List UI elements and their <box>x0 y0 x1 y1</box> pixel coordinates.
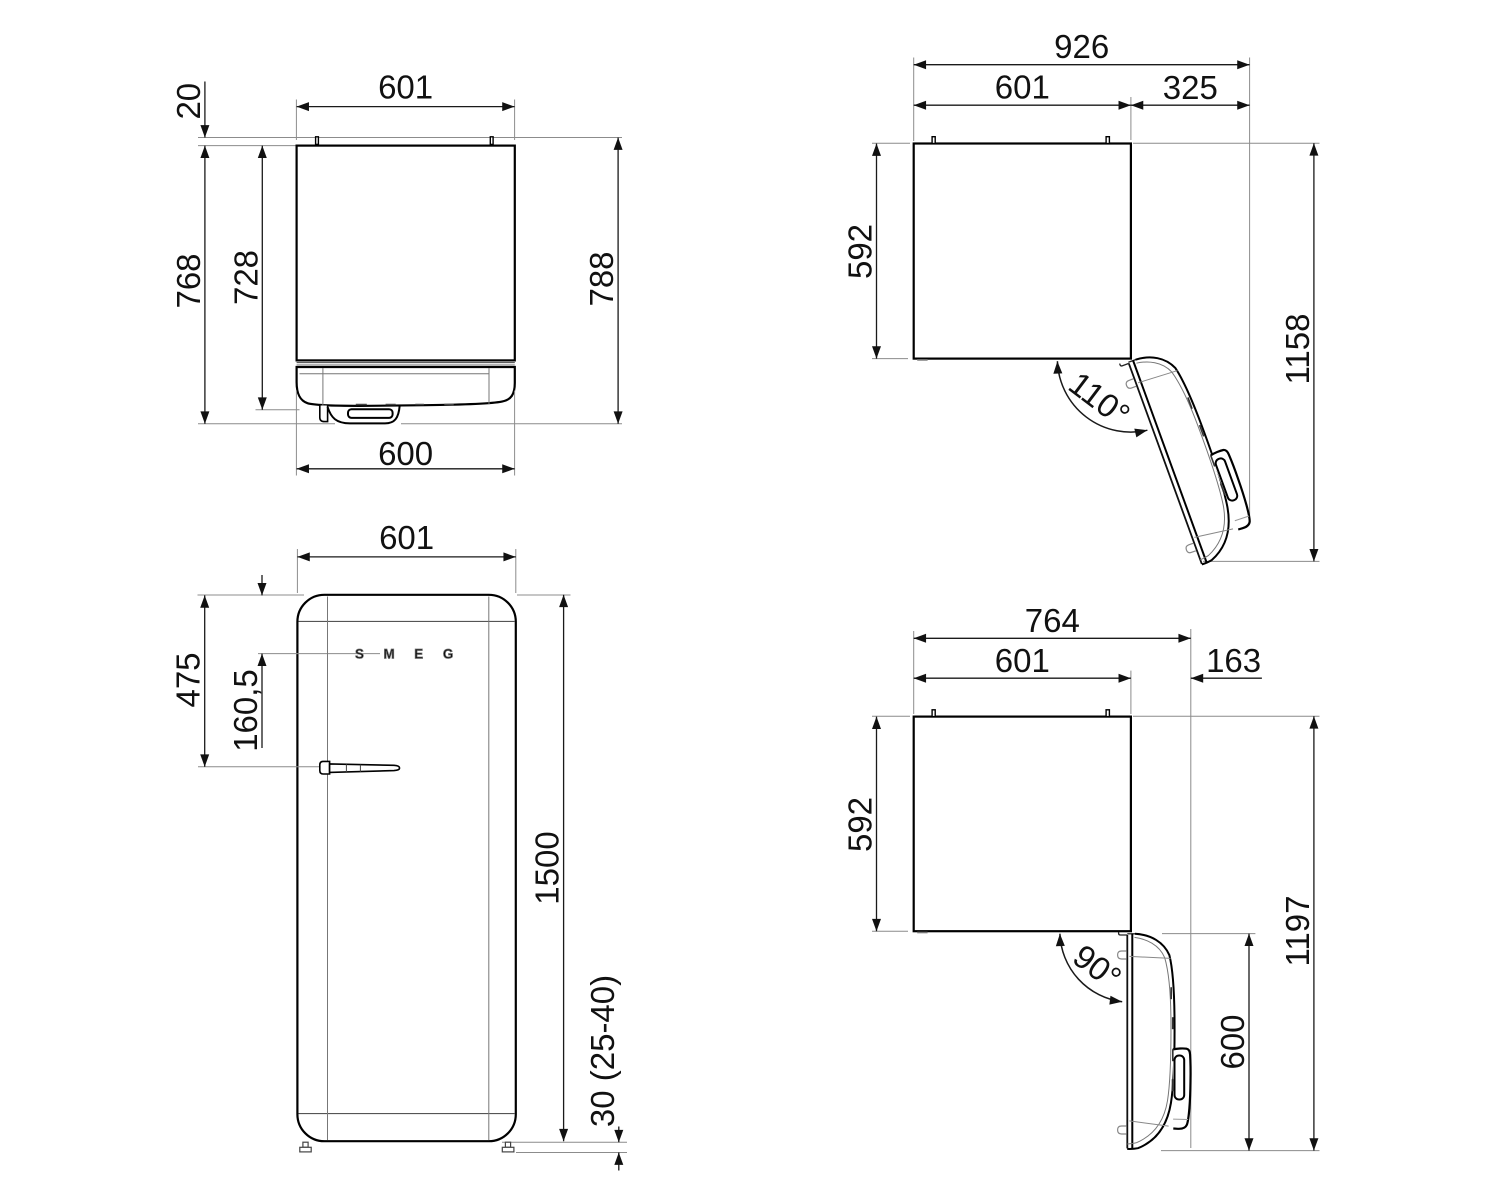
svg-text:728: 728 <box>227 250 264 305</box>
svg-text:601: 601 <box>378 69 433 106</box>
svg-text:926: 926 <box>1054 28 1109 65</box>
svg-text:768: 768 <box>170 253 207 308</box>
svg-text:600: 600 <box>378 435 433 472</box>
svg-text:1500: 1500 <box>529 831 566 904</box>
svg-text:475: 475 <box>170 652 207 707</box>
svg-text:1197: 1197 <box>1279 896 1316 967</box>
svg-text:601: 601 <box>379 519 434 556</box>
svg-text:30 (25-40): 30 (25-40) <box>584 975 621 1127</box>
svg-text:325: 325 <box>1163 69 1218 106</box>
svg-text:601: 601 <box>995 68 1050 105</box>
svg-text:600: 600 <box>1214 1014 1251 1069</box>
svg-text:592: 592 <box>842 224 879 279</box>
svg-text:1158: 1158 <box>1279 314 1316 385</box>
svg-text:163: 163 <box>1206 642 1261 679</box>
svg-text:788: 788 <box>583 251 620 306</box>
svg-text:160,5: 160,5 <box>227 669 264 752</box>
svg-text:592: 592 <box>842 797 879 852</box>
svg-text:764: 764 <box>1025 602 1080 639</box>
svg-text:SMEG: SMEG <box>355 647 473 662</box>
svg-text:20: 20 <box>170 83 207 120</box>
svg-text:601: 601 <box>995 642 1050 679</box>
